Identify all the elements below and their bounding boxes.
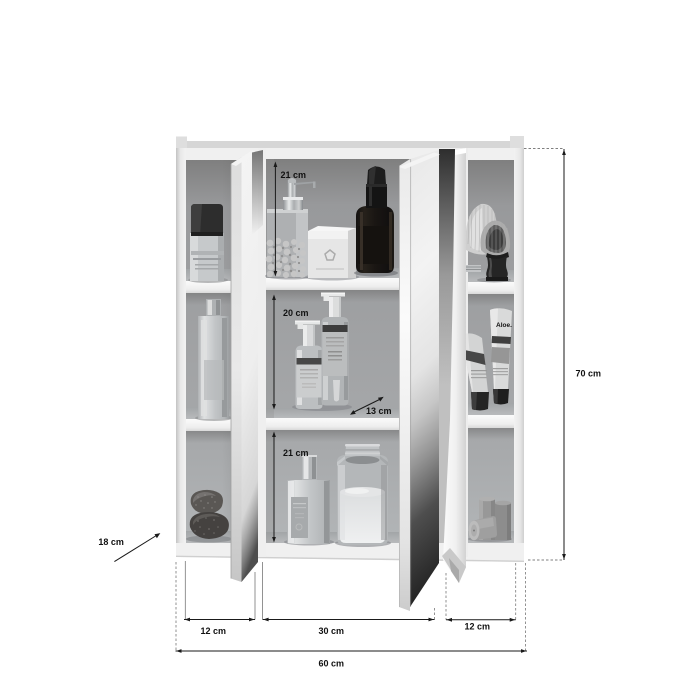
svg-text:21 cm: 21 cm <box>281 170 307 180</box>
svg-text:12 cm: 12 cm <box>201 626 227 636</box>
svg-text:18 cm: 18 cm <box>98 537 124 547</box>
svg-text:70 cm: 70 cm <box>576 369 602 379</box>
svg-text:13 cm: 13 cm <box>366 406 392 416</box>
svg-text:30 cm: 30 cm <box>319 626 345 636</box>
svg-text:60 cm: 60 cm <box>319 659 345 669</box>
svg-text:20 cm: 20 cm <box>283 308 309 318</box>
svg-text:21 cm: 21 cm <box>283 448 309 458</box>
svg-text:Aloe.: Aloe. <box>496 322 512 329</box>
svg-text:12 cm: 12 cm <box>465 622 491 632</box>
